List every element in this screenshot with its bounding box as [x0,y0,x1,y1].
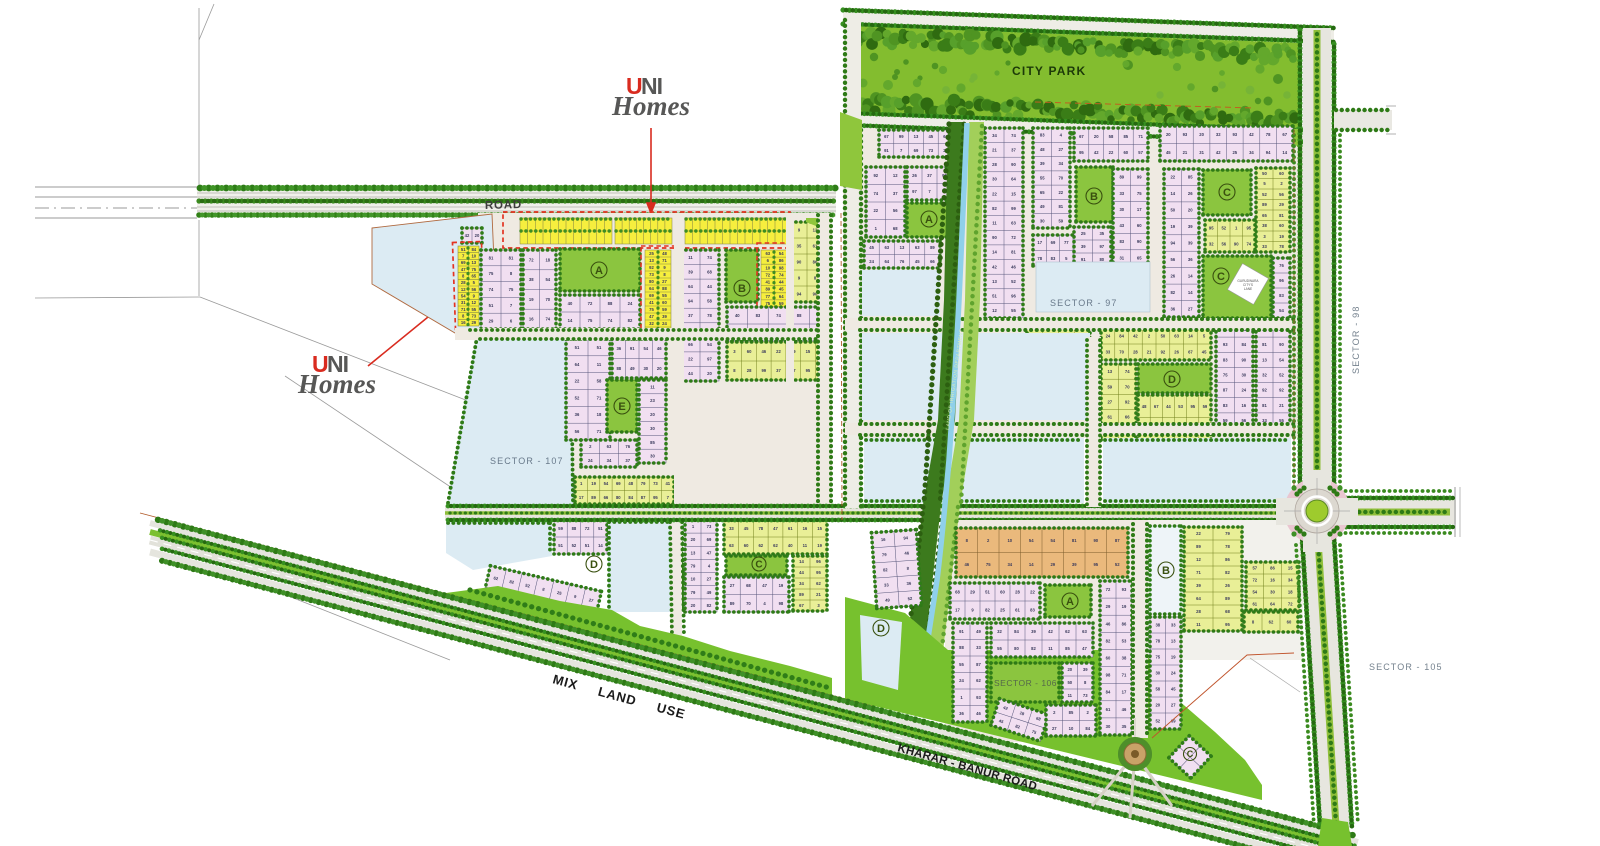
svg-text:67: 67 [884,134,889,139]
svg-text:E: E [618,401,625,413]
svg-text:60: 60 [1000,590,1005,595]
svg-text:63: 63 [915,245,920,250]
svg-text:44: 44 [799,570,804,575]
svg-text:42: 42 [1094,150,1099,155]
svg-text:Homes: Homes [297,369,376,399]
svg-text:98: 98 [1106,673,1111,678]
svg-text:61: 61 [1106,707,1111,712]
svg-text:84: 84 [1241,342,1246,347]
svg-text:54: 54 [1050,538,1055,543]
svg-text:56: 56 [1279,192,1284,197]
svg-text:12: 12 [1196,557,1201,562]
svg-text:11: 11 [803,543,808,548]
svg-text:54: 54 [707,342,712,347]
svg-text:86: 86 [1225,557,1230,562]
svg-text:29: 29 [1050,562,1055,567]
svg-text:97: 97 [912,189,917,194]
svg-text:34: 34 [1007,562,1012,567]
svg-text:21: 21 [1279,403,1284,408]
svg-text:73: 73 [649,272,654,277]
svg-text:74: 74 [873,191,878,196]
svg-text:27: 27 [1052,726,1057,731]
svg-text:34: 34 [799,581,804,586]
svg-text:20: 20 [1199,132,1204,137]
svg-text:B: B [1090,191,1098,203]
svg-text:55: 55 [1040,176,1045,181]
svg-text:44: 44 [779,280,784,285]
svg-text:55: 55 [1011,308,1016,313]
svg-text:74: 74 [1011,133,1016,138]
svg-text:91: 91 [1081,257,1086,262]
svg-text:78: 78 [1155,639,1160,644]
svg-text:46: 46 [657,346,662,351]
svg-text:48: 48 [662,251,667,256]
svg-text:61: 61 [788,526,793,531]
svg-text:28: 28 [1133,350,1138,355]
svg-text:72: 72 [1288,602,1293,607]
svg-text:83: 83 [1223,403,1228,408]
svg-text:47: 47 [762,583,767,588]
svg-text:52: 52 [1279,373,1284,378]
svg-text:92: 92 [1262,388,1267,393]
svg-text:60: 60 [662,300,667,305]
svg-text:47: 47 [461,267,466,272]
svg-text:83: 83 [1223,357,1228,362]
svg-text:56: 56 [575,429,580,434]
svg-text:71: 71 [1196,570,1201,575]
svg-text:85: 85 [1069,710,1074,715]
svg-text:61: 61 [1015,608,1020,613]
svg-text:56: 56 [1221,242,1226,247]
svg-text:89: 89 [1225,596,1230,601]
svg-text:96: 96 [1279,278,1284,283]
svg-text:A: A [1066,596,1074,608]
svg-text:89: 89 [1196,544,1201,549]
svg-text:74: 74 [1125,369,1130,374]
svg-text:85: 85 [1123,134,1128,139]
svg-text:13: 13 [471,260,476,265]
svg-text:33: 33 [729,526,734,531]
svg-text:87: 87 [641,495,646,500]
svg-text:60: 60 [1123,150,1128,155]
svg-text:69: 69 [649,293,654,298]
svg-text:19: 19 [591,481,596,486]
svg-text:33: 33 [1171,623,1176,628]
svg-text:30: 30 [1270,590,1275,595]
svg-text:12: 12 [471,300,476,305]
svg-text:34: 34 [1058,161,1063,166]
svg-text:62: 62 [816,581,821,586]
svg-text:95: 95 [816,570,821,575]
svg-text:14: 14 [992,250,997,255]
svg-text:60: 60 [1137,223,1142,228]
svg-text:16: 16 [1241,403,1246,408]
svg-text:36: 36 [959,711,964,716]
svg-text:53: 53 [1178,404,1183,409]
svg-text:73: 73 [653,481,658,486]
svg-text:31: 31 [1199,150,1204,155]
svg-text:81: 81 [1072,538,1077,543]
svg-text:75: 75 [471,267,476,272]
svg-text:64: 64 [649,286,654,291]
svg-text:18: 18 [1288,590,1293,595]
svg-text:83: 83 [1279,293,1284,298]
svg-text:CITY PARK: CITY PARK [1012,64,1086,78]
svg-text:27: 27 [730,583,735,588]
svg-text:SECTOR - 105: SECTOR - 105 [1369,662,1443,672]
svg-text:57: 57 [1252,566,1257,571]
svg-text:27: 27 [1058,147,1063,152]
svg-text:48: 48 [628,481,633,486]
svg-text:89: 89 [799,592,804,597]
svg-text:60: 60 [744,543,749,548]
svg-text:49: 49 [630,366,635,371]
svg-text:69: 69 [1051,240,1056,245]
svg-text:52: 52 [572,543,577,548]
svg-text:14: 14 [1188,290,1193,295]
svg-text:85: 85 [650,440,655,445]
svg-text:11: 11 [1048,646,1053,651]
svg-text:74: 74 [608,318,613,323]
svg-text:65: 65 [1040,190,1045,195]
svg-text:78: 78 [758,526,763,531]
svg-text:35: 35 [1122,724,1127,729]
svg-text:44: 44 [707,284,712,289]
svg-text:82: 82 [707,603,712,608]
svg-text:62: 62 [773,543,778,548]
svg-text:D: D [877,623,885,635]
svg-text:85: 85 [1065,646,1070,651]
svg-text:82: 82 [1170,290,1175,295]
svg-text:58: 58 [1109,134,1114,139]
svg-text:75: 75 [1155,655,1160,660]
svg-text:79: 79 [691,590,696,595]
svg-text:65: 65 [471,274,476,279]
svg-text:15: 15 [806,349,811,354]
svg-text:69: 69 [707,537,712,542]
svg-text:89: 89 [730,601,735,606]
svg-text:29: 29 [1279,202,1284,207]
svg-text:22: 22 [1109,150,1114,155]
svg-text:51: 51 [558,543,563,548]
svg-text:20: 20 [475,233,480,238]
svg-text:68: 68 [746,583,751,588]
svg-text:33: 33 [1106,350,1111,355]
svg-text:25: 25 [649,251,654,256]
svg-text:67: 67 [1079,134,1084,139]
svg-text:90: 90 [1137,239,1142,244]
svg-text:59: 59 [1203,404,1208,409]
svg-text:58: 58 [707,298,712,303]
svg-text:89: 89 [1119,175,1124,180]
svg-text:68: 68 [955,590,960,595]
svg-text:55: 55 [997,646,1002,651]
svg-text:81: 81 [1262,403,1267,408]
svg-text:26: 26 [1170,273,1175,278]
svg-text:61: 61 [1107,415,1112,420]
svg-text:90: 90 [1234,242,1239,247]
svg-text:76: 76 [900,259,905,264]
svg-text:95: 95 [806,368,811,373]
svg-text:84: 84 [1014,629,1019,634]
svg-text:86: 86 [1270,566,1275,571]
svg-text:D: D [590,559,598,571]
svg-text:66: 66 [1125,415,1130,420]
svg-text:39: 39 [1188,224,1193,229]
svg-text:26: 26 [1225,583,1230,588]
svg-text:81: 81 [489,255,494,260]
svg-text:42: 42 [465,233,470,238]
svg-text:14: 14 [1282,150,1287,155]
svg-text:33: 33 [1262,244,1267,249]
svg-text:55: 55 [662,293,667,298]
svg-text:20: 20 [691,537,696,542]
svg-text:25: 25 [1232,150,1237,155]
svg-text:67: 67 [799,603,804,608]
svg-text:14: 14 [1188,273,1193,278]
svg-text:71: 71 [597,395,602,400]
svg-text:C: C [755,560,762,571]
svg-text:22: 22 [873,208,878,213]
svg-text:42: 42 [992,264,997,269]
svg-text:98: 98 [779,265,784,270]
svg-text:39: 39 [1081,244,1086,249]
svg-text:31: 31 [461,300,466,305]
svg-text:82: 82 [1225,570,1230,575]
svg-text:34: 34 [1288,578,1293,583]
svg-text:95: 95 [1246,226,1251,231]
svg-text:56: 56 [893,208,898,213]
svg-text:84: 84 [1119,334,1124,339]
svg-text:62: 62 [1065,629,1070,634]
svg-text:69: 69 [914,148,919,153]
svg-text:41: 41 [665,481,670,486]
svg-text:14: 14 [1170,191,1175,196]
svg-text:88: 88 [662,286,667,291]
svg-text:83: 83 [1040,133,1045,138]
svg-text:83: 83 [756,313,761,318]
svg-text:SECTOR - 106: SECTOR - 106 [994,678,1057,688]
svg-text:13: 13 [649,258,654,263]
svg-text:29: 29 [1106,604,1111,609]
svg-text:19: 19 [1279,234,1284,239]
svg-text:80: 80 [1014,646,1019,651]
svg-text:20: 20 [691,603,696,608]
svg-text:71: 71 [1138,134,1143,139]
svg-text:20: 20 [1067,667,1072,672]
svg-text:52: 52 [1115,562,1120,567]
svg-text:45: 45 [869,245,874,250]
svg-text:77: 77 [1064,240,1069,245]
svg-text:41: 41 [649,300,654,305]
svg-text:30: 30 [643,366,648,371]
svg-text:58: 58 [597,379,602,384]
svg-text:54: 54 [779,251,784,256]
svg-text:63: 63 [607,444,612,449]
svg-text:81: 81 [1279,213,1284,218]
svg-text:13: 13 [1171,639,1176,644]
svg-text:10: 10 [1007,538,1012,543]
svg-text:94: 94 [797,292,802,297]
svg-text:60: 60 [747,349,752,354]
svg-text:19: 19 [1171,655,1176,660]
svg-text:30: 30 [1155,671,1160,676]
svg-text:76: 76 [1279,263,1284,268]
svg-text:72: 72 [1252,578,1257,583]
svg-text:15: 15 [1288,566,1293,571]
svg-text:37: 37 [893,191,898,196]
svg-text:64: 64 [884,259,889,264]
svg-text:86: 86 [1122,621,1127,626]
svg-text:10: 10 [691,577,696,582]
svg-text:46: 46 [976,711,981,716]
svg-text:81: 81 [509,255,514,260]
svg-text:51: 51 [992,294,997,299]
svg-text:52: 52 [1011,279,1016,284]
svg-text:88: 88 [797,313,802,318]
svg-text:84: 84 [628,495,633,500]
svg-text:87: 87 [1223,388,1228,393]
svg-text:63: 63 [1082,629,1087,634]
svg-text:49: 49 [707,590,712,595]
svg-text:45: 45 [1166,150,1171,155]
svg-text:14: 14 [799,559,804,564]
svg-text:14: 14 [1188,334,1193,339]
svg-text:47: 47 [707,550,712,555]
svg-text:17: 17 [579,495,584,500]
svg-text:21: 21 [816,592,821,597]
svg-text:45: 45 [1202,350,1207,355]
svg-text:11: 11 [1196,622,1201,627]
svg-text:72: 72 [529,257,534,262]
svg-text:15: 15 [1011,191,1016,196]
svg-text:95: 95 [1209,226,1214,231]
svg-text:95: 95 [1190,404,1195,409]
svg-text:Homes: Homes [611,91,690,121]
svg-text:75: 75 [649,307,654,312]
svg-text:42: 42 [1048,629,1053,634]
svg-text:18: 18 [545,257,550,262]
svg-text:83: 83 [1051,256,1056,261]
svg-text:78: 78 [1266,132,1271,137]
svg-text:90: 90 [1011,162,1016,167]
svg-text:74: 74 [1246,242,1251,247]
svg-text:89: 89 [1262,202,1267,207]
svg-text:54: 54 [643,346,648,351]
svg-text:72: 72 [588,301,593,306]
svg-text:63: 63 [729,543,734,548]
svg-text:22: 22 [776,349,781,354]
svg-text:22: 22 [1196,531,1201,536]
svg-text:81: 81 [1058,204,1063,209]
svg-text:27: 27 [1188,306,1193,311]
svg-text:96: 96 [1011,294,1016,299]
svg-text:34: 34 [607,458,612,463]
svg-text:22: 22 [992,191,997,196]
svg-text:14: 14 [568,318,573,323]
svg-text:45: 45 [1171,687,1176,692]
svg-text:59: 59 [558,526,563,531]
svg-text:SECTOR - 107: SECTOR - 107 [490,456,564,466]
svg-text:38: 38 [1155,623,1160,628]
svg-text:35: 35 [1099,231,1104,236]
svg-text:45: 45 [744,526,749,531]
svg-text:51: 51 [597,345,602,350]
svg-text:80: 80 [1099,257,1104,262]
svg-text:81: 81 [1011,250,1016,255]
svg-text:63: 63 [884,245,889,250]
svg-text:99: 99 [1011,206,1016,211]
svg-text:45: 45 [779,287,784,292]
svg-text:B: B [1162,565,1170,577]
svg-text:32: 32 [1262,373,1267,378]
svg-text:32: 32 [649,321,654,326]
svg-text:59: 59 [662,307,667,312]
svg-text:35: 35 [797,244,802,249]
svg-text:40: 40 [735,313,740,318]
svg-text:30: 30 [1106,724,1111,729]
svg-text:60: 60 [1106,656,1111,661]
svg-text:80: 80 [616,495,621,500]
svg-text:47: 47 [649,314,654,319]
svg-text:12: 12 [461,287,466,292]
svg-text:36: 36 [575,412,580,417]
svg-text:72: 72 [765,272,770,277]
svg-text:42: 42 [1249,132,1254,137]
svg-text:67: 67 [1188,350,1193,355]
svg-text:54: 54 [545,277,550,282]
svg-text:38: 38 [1122,656,1127,661]
svg-text:75: 75 [489,271,494,276]
svg-text:76: 76 [625,444,630,449]
svg-text:62: 62 [976,678,981,683]
svg-text:50: 50 [1262,171,1267,176]
svg-text:39: 39 [1072,562,1077,567]
svg-text:24: 24 [959,678,964,683]
svg-text:58: 58 [1155,687,1160,692]
svg-text:20: 20 [707,371,712,376]
svg-text:22: 22 [1030,590,1035,595]
svg-text:14: 14 [598,543,603,548]
svg-text:82: 82 [985,608,990,613]
svg-text:26: 26 [1188,191,1193,196]
svg-text:ROAD: ROAD [485,199,522,212]
svg-text:63: 63 [765,251,770,256]
svg-text:31: 31 [1119,255,1124,260]
svg-text:92: 92 [1125,400,1130,405]
svg-text:88: 88 [608,301,613,306]
svg-text:61: 61 [1252,602,1257,607]
svg-text:20: 20 [650,412,655,417]
svg-text:53: 53 [1122,638,1127,643]
svg-text:26: 26 [1174,350,1179,355]
svg-text:37: 37 [776,368,781,373]
svg-text:56: 56 [1170,257,1175,262]
svg-text:10: 10 [471,254,476,259]
svg-text:16: 16 [1270,578,1275,583]
svg-text:27: 27 [707,577,712,582]
svg-text:71: 71 [1122,673,1127,678]
svg-text:33: 33 [976,645,981,650]
svg-text:71: 71 [662,258,667,263]
svg-text:30: 30 [1241,373,1246,378]
svg-text:SECTOR - 97: SECTOR - 97 [1050,298,1117,308]
svg-text:82: 82 [992,206,997,211]
svg-text:45: 45 [928,134,933,139]
svg-text:A: A [595,265,603,277]
svg-text:50: 50 [1170,208,1175,213]
svg-text:20: 20 [1166,132,1171,137]
